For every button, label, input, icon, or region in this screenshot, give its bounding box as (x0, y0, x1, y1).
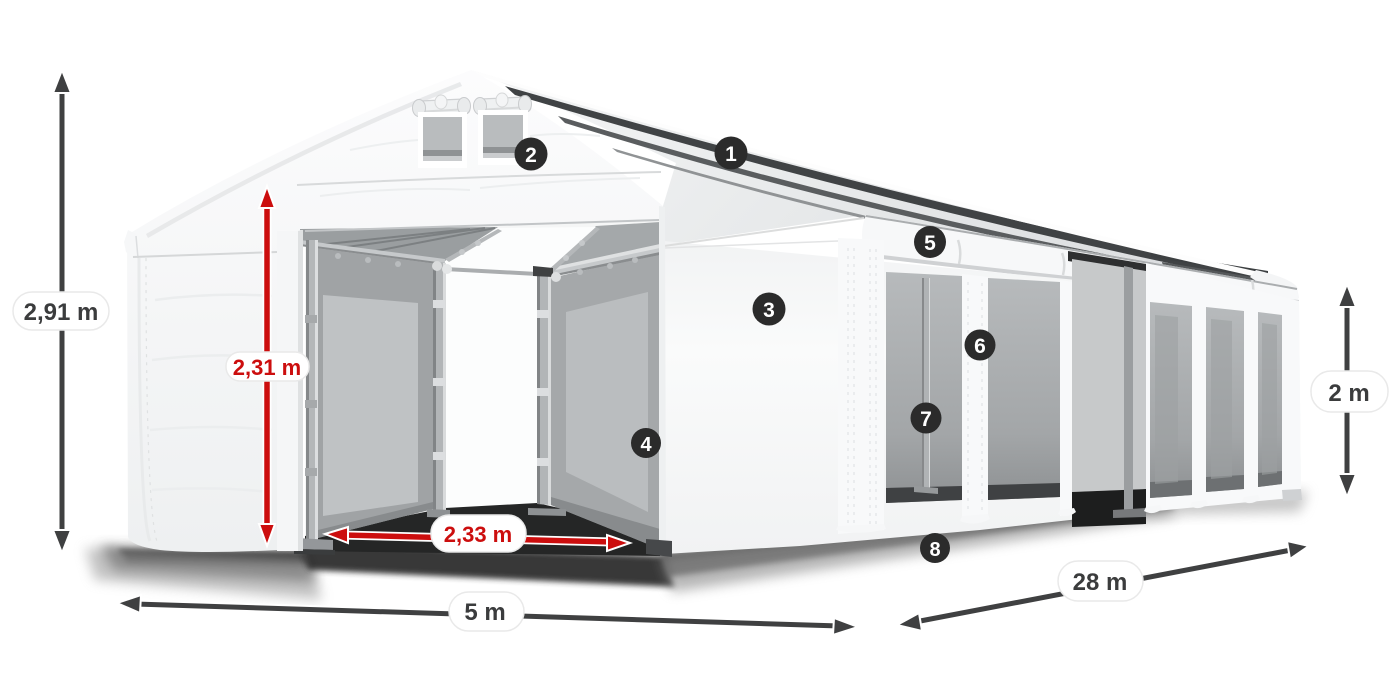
svg-text:5: 5 (924, 232, 936, 255)
svg-text:2,91 m: 2,91 m (24, 299, 99, 326)
svg-text:4: 4 (640, 434, 652, 456)
svg-text:5 m: 5 m (464, 599, 505, 626)
svg-text:28 m: 28 m (1073, 569, 1128, 596)
svg-text:2,31 m: 2,31 m (233, 355, 302, 380)
svg-text:2: 2 (525, 144, 537, 167)
svg-text:8: 8 (929, 539, 940, 561)
svg-text:6: 6 (974, 335, 986, 358)
svg-text:7: 7 (920, 408, 932, 431)
svg-text:3: 3 (763, 299, 775, 322)
svg-text:1: 1 (725, 143, 737, 166)
svg-text:2 m: 2 m (1328, 380, 1369, 407)
svg-text:2,33 m: 2,33 m (444, 522, 513, 547)
